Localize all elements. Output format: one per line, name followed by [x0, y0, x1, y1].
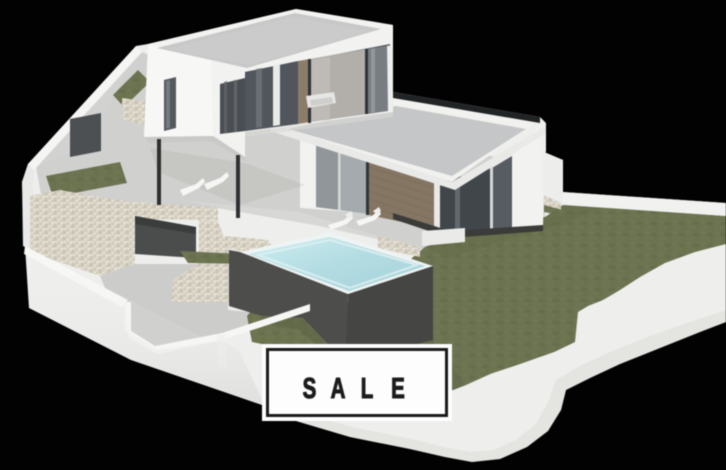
svg-text:A: A	[331, 374, 346, 405]
svg-text:E: E	[391, 374, 405, 405]
svg-text:L: L	[361, 374, 374, 405]
svg-text:S: S	[303, 374, 317, 405]
